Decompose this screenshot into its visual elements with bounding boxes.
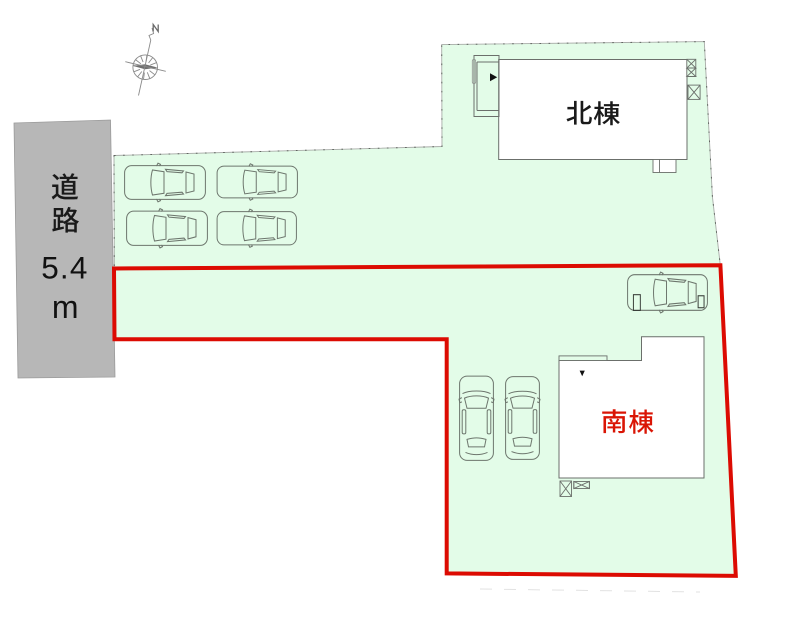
svg-text:m: m — [52, 289, 79, 325]
svg-text:5.4: 5.4 — [41, 249, 88, 285]
